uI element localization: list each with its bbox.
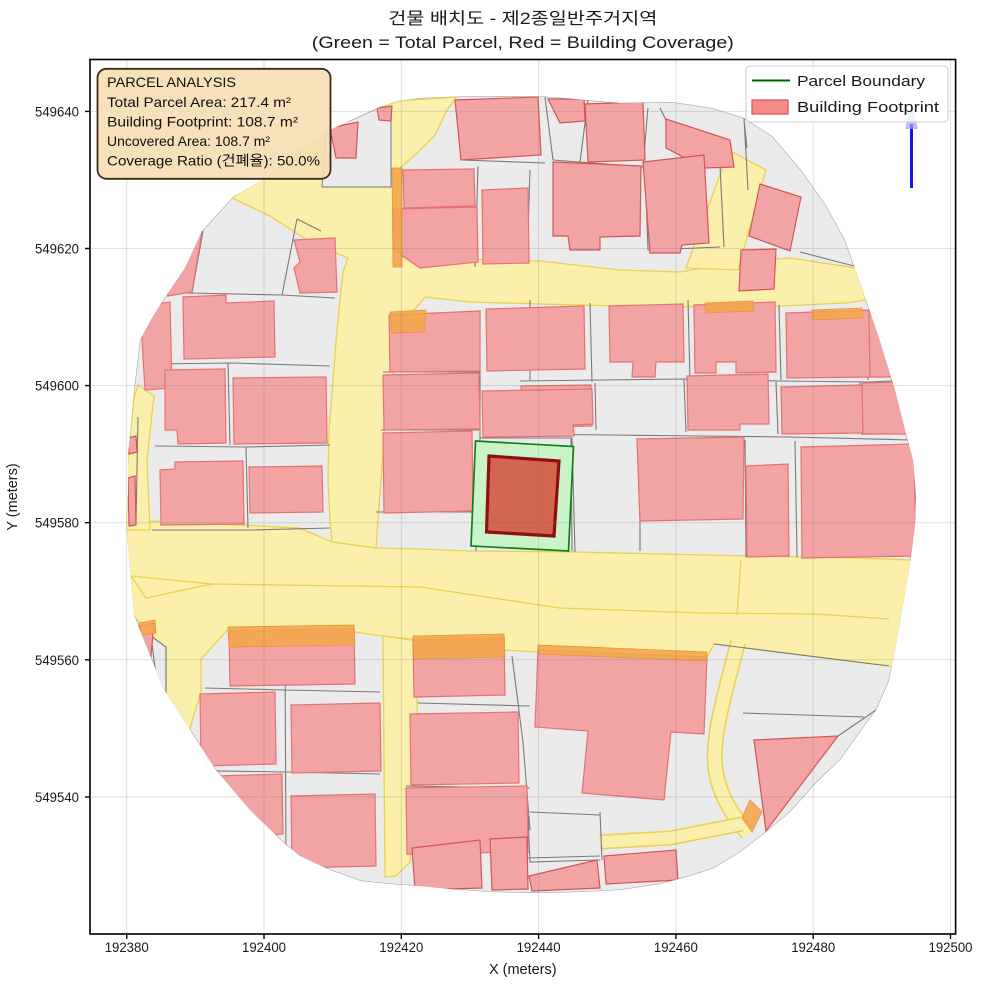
svg-text:192380: 192380 (105, 939, 149, 955)
svg-text:192500: 192500 (929, 939, 973, 955)
svg-text:549560: 549560 (35, 652, 79, 668)
svg-text:549620: 549620 (35, 241, 79, 257)
svg-text:Building Footprint: 108.7 m²: Building Footprint: 108.7 m² (107, 113, 298, 129)
svg-text:Y (meters): Y (meters) (5, 463, 21, 530)
svg-text:549640: 549640 (35, 103, 79, 119)
svg-text:192440: 192440 (517, 939, 561, 955)
svg-text:PARCEL ANALYSIS: PARCEL ANALYSIS (107, 74, 236, 90)
svg-text:192400: 192400 (242, 939, 286, 955)
svg-text:549580: 549580 (35, 515, 79, 531)
svg-text:Building Footprint: Building Footprint (797, 99, 940, 116)
svg-text:Uncovered Area: 108.7 m²: Uncovered Area: 108.7 m² (107, 133, 270, 149)
svg-text:Coverage Ratio (건폐율): 50.0%: Coverage Ratio (건폐율): 50.0% (107, 153, 320, 169)
svg-text:X (meters): X (meters) (489, 962, 557, 978)
svg-text:Total Parcel Area: 217.4 m²: Total Parcel Area: 217.4 m² (107, 94, 291, 110)
svg-text:건물 배치도 - 제2종일반주거지역: 건물 배치도 - 제2종일반주거지역 (388, 9, 657, 28)
svg-text:192460: 192460 (654, 939, 698, 955)
svg-text:549540: 549540 (35, 789, 79, 805)
svg-text:(Green = Total Parcel, Red = B: (Green = Total Parcel, Red = Building Co… (312, 34, 734, 52)
svg-text:Parcel Boundary: Parcel Boundary (797, 73, 926, 90)
svg-text:192480: 192480 (791, 939, 835, 955)
svg-text:192420: 192420 (379, 939, 423, 955)
svg-text:549600: 549600 (35, 378, 79, 394)
